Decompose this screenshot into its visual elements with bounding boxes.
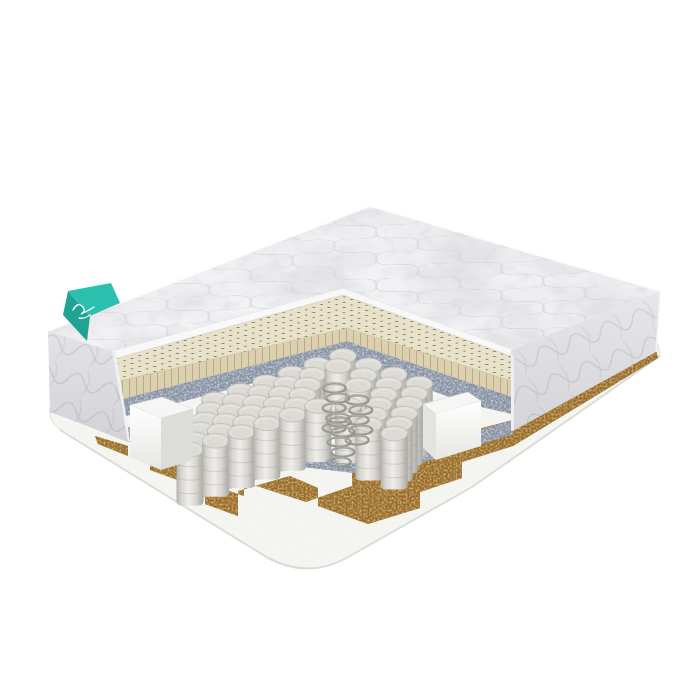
pocket-spring <box>253 416 280 479</box>
edge-support-box-left <box>130 397 193 470</box>
pocket-spring <box>279 407 306 470</box>
pocket-spring <box>228 425 255 488</box>
product-photo-canvas <box>0 0 700 700</box>
mattress-cutaway-illustration <box>0 0 700 700</box>
pocket-spring <box>202 433 229 496</box>
pocket-spring <box>381 426 408 489</box>
right-panel-cut-face <box>511 355 514 431</box>
